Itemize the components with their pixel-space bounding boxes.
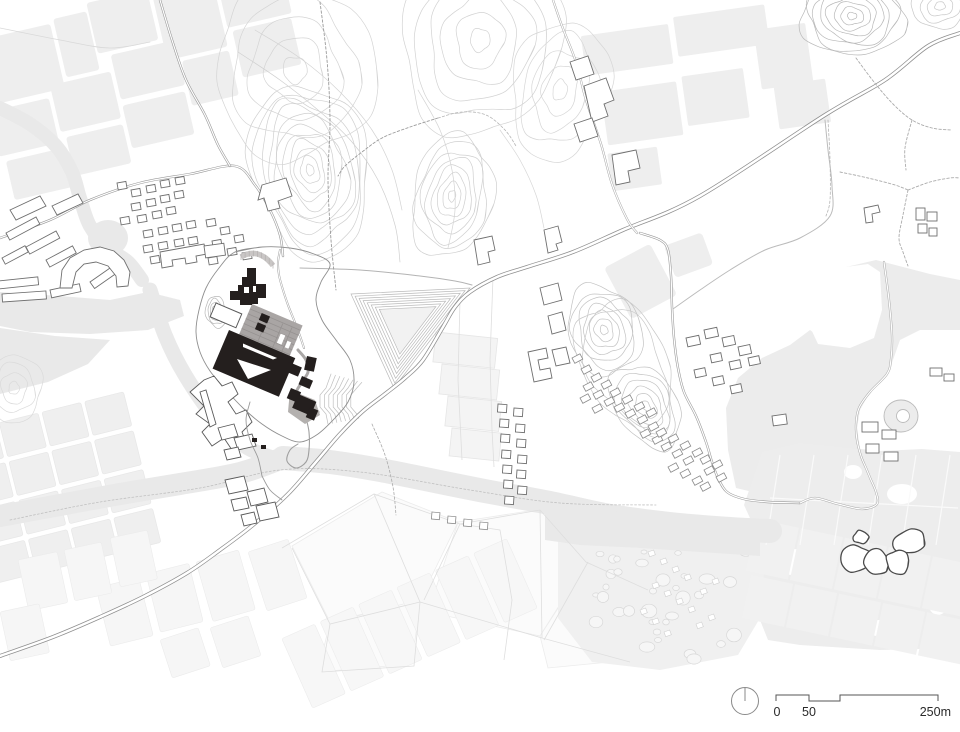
svg-text:0: 0 <box>774 705 781 719</box>
svg-text:250m: 250m <box>920 705 951 719</box>
svg-text:50: 50 <box>802 705 816 719</box>
